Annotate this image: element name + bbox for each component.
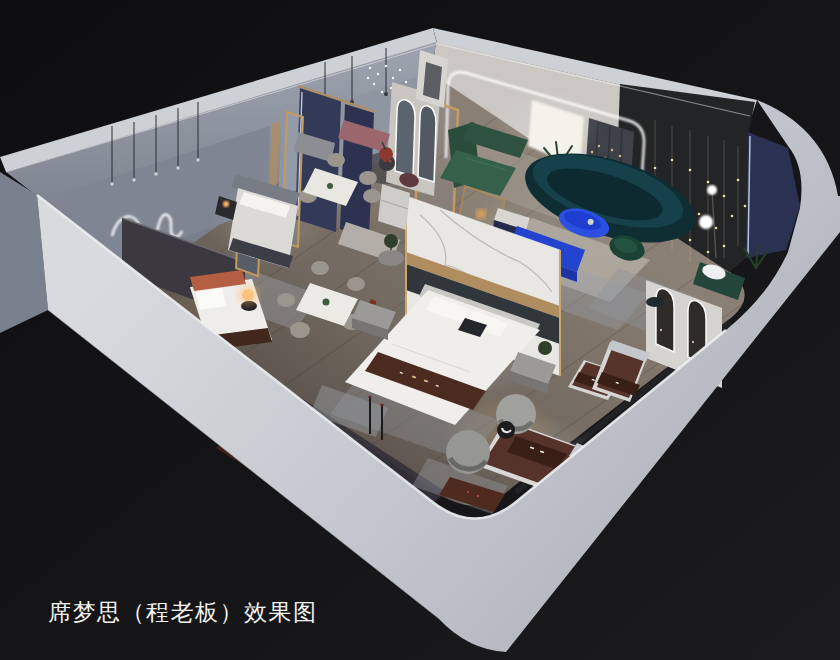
tub-chair-2 [446,430,490,474]
arch-mirror-1 [395,100,415,176]
round-side-table-dark [646,297,664,307]
showroom-rendering [0,0,840,660]
arch-mirror-2 [418,106,436,182]
caption: 席梦思（程老板）效果图 [48,597,318,628]
nightstand-plant [538,341,552,355]
rendering-canvas: 席梦思（程老板）效果图 [0,0,840,660]
round-side-table [497,421,515,439]
cabinet-dark-panel [423,62,442,100]
table-plant [327,183,333,189]
table-plant [323,299,330,306]
